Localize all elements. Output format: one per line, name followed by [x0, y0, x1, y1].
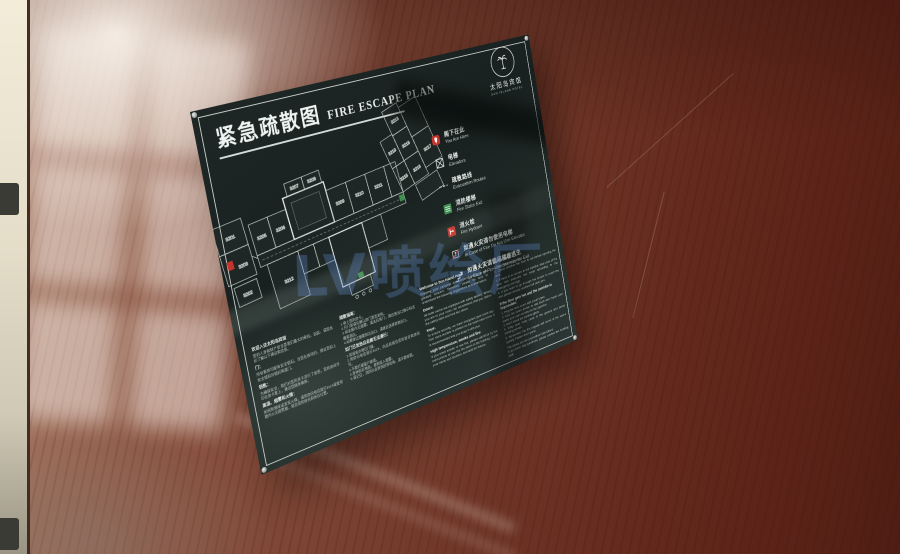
- you-are-here-icon: [431, 135, 440, 147]
- mounting-screw: [524, 35, 529, 41]
- fire-stairs-icon: [443, 203, 452, 215]
- notice-column-welcome-en: Welcome to Sun Island Hotel Enjoying you…: [419, 263, 503, 390]
- elevator-icon: [435, 158, 444, 170]
- logo-ring: [488, 44, 516, 79]
- mounting-screw: [261, 466, 267, 474]
- mounting-screw: [191, 112, 198, 119]
- door-hinge: [0, 183, 19, 215]
- photo-scene: 紧急疏散图FIRE ESCAPE PLAN 太阳岛宾馆 SUN ISLAND H: [0, 0, 900, 554]
- hotel-logo: 太阳岛宾馆 SUN ISLAND HOTEL: [479, 42, 528, 98]
- notice-column-instructions-zh: 疏散指南： 1.带上您的房卡。 2.开门前请先确认房门是否发热。 3.如走廊内无…: [339, 290, 430, 423]
- no-elevator-icon: [451, 248, 460, 260]
- route-dash-icon: [439, 180, 449, 192]
- mounting-screw: [573, 334, 577, 340]
- palm-tree-icon: [493, 50, 512, 74]
- door-hinge: [0, 518, 19, 550]
- fire-hydrant-icon: [447, 226, 456, 238]
- wall-edge: [0, 0, 30, 554]
